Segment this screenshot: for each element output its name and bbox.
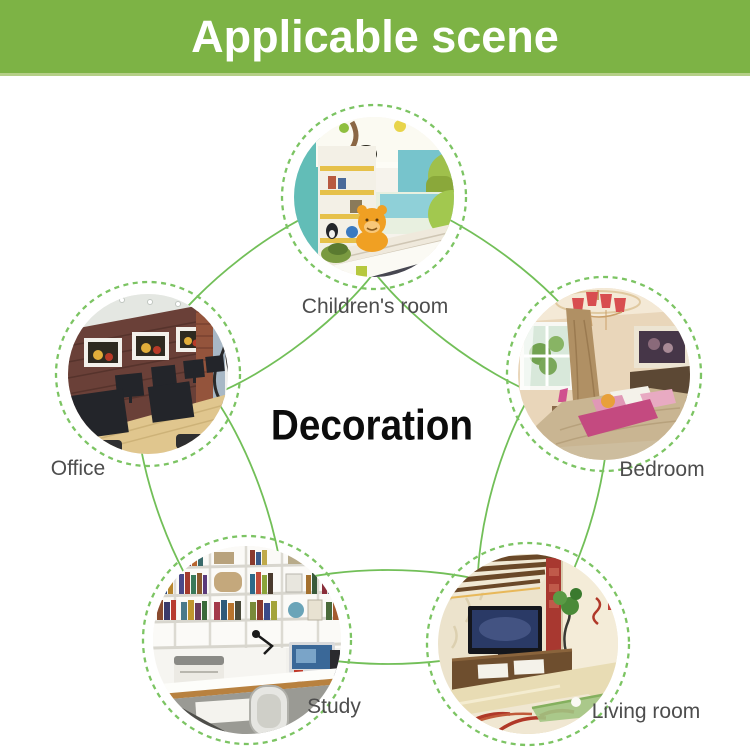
page: Applicable scene <box>0 0 750 750</box>
scene-diagram: Decoration Children's room Office Bedroo… <box>0 0 750 750</box>
office-photo <box>68 294 232 456</box>
center-title: Decoration <box>271 402 473 451</box>
scene-label-study: Study <box>307 695 361 719</box>
scene-label-childrens-room: Children's room <box>302 295 448 319</box>
bedroom-photo <box>518 288 690 462</box>
childrens-room-photo <box>294 115 476 294</box>
scene-label-bedroom: Bedroom <box>619 458 704 482</box>
office-chair <box>250 686 288 736</box>
diagram-graphic <box>0 0 750 750</box>
scene-label-office: Office <box>51 457 105 481</box>
scene-label-living-room: Living room <box>592 700 701 724</box>
